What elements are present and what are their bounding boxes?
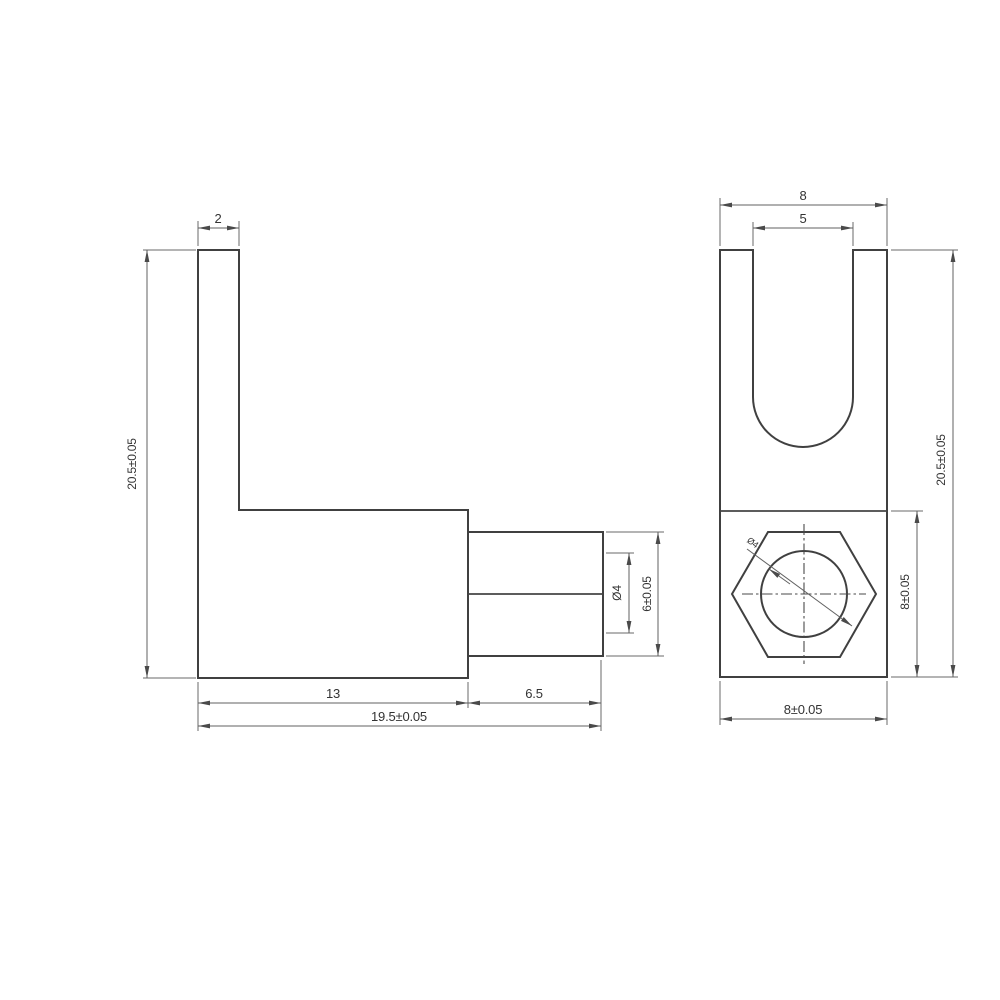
- engineering-drawing: 2 20.5±0.05 13 6.5 19.5±0.05: [0, 0, 1000, 1000]
- dim-arm-width-label: 2: [214, 211, 221, 226]
- dim-arm-width: 2: [198, 211, 239, 246]
- dim-hole-dia-front: Ø4: [606, 553, 634, 633]
- dim-body-length-label: 13: [326, 686, 340, 701]
- dim-hole-dia-side: Ø4: [745, 535, 852, 626]
- dim-overall-height-side: 20.5±0.05: [891, 250, 958, 677]
- dim-base-height-label: 8±0.05: [898, 574, 912, 610]
- front-view: 2 20.5±0.05 13 6.5 19.5±0.05: [125, 211, 664, 731]
- dim-base-height: 8±0.05: [891, 511, 923, 677]
- dim-hole-dia-front-label: Ø4: [610, 585, 624, 601]
- dim-boss-length-label: 6.5: [525, 686, 542, 701]
- dim-overall-height-side-label: 20.5±0.05: [934, 434, 948, 486]
- side-view: Ø4 8 5 20.5±0.05 8±0.05: [720, 188, 958, 725]
- dim-base-width: 8±0.05: [720, 681, 887, 725]
- dim-overall-length: 19.5±0.05: [198, 709, 601, 726]
- dim-slot-width-label: 5: [799, 211, 806, 226]
- dim-slot-width: 5: [753, 211, 853, 246]
- front-outline: [198, 250, 468, 678]
- dim-overall-length-label: 19.5±0.05: [371, 709, 427, 724]
- dim-boss-length: 6.5: [468, 660, 601, 731]
- dim-overall-height-front: 20.5±0.05: [125, 250, 196, 678]
- dimension-arrow-line: [769, 569, 790, 584]
- dim-overall-height-front-label: 20.5±0.05: [125, 438, 139, 490]
- dim-boss-dia-label: 6±0.05: [640, 576, 654, 612]
- extension-line: [143, 250, 196, 678]
- dim-body-length: 13: [198, 682, 468, 731]
- drawing-canvas: 2 20.5±0.05 13 6.5 19.5±0.05: [0, 0, 1000, 1000]
- dimension-line: [747, 549, 852, 626]
- dim-base-width-label: 8±0.05: [784, 702, 822, 717]
- dim-overall-width-label: 8: [799, 188, 806, 203]
